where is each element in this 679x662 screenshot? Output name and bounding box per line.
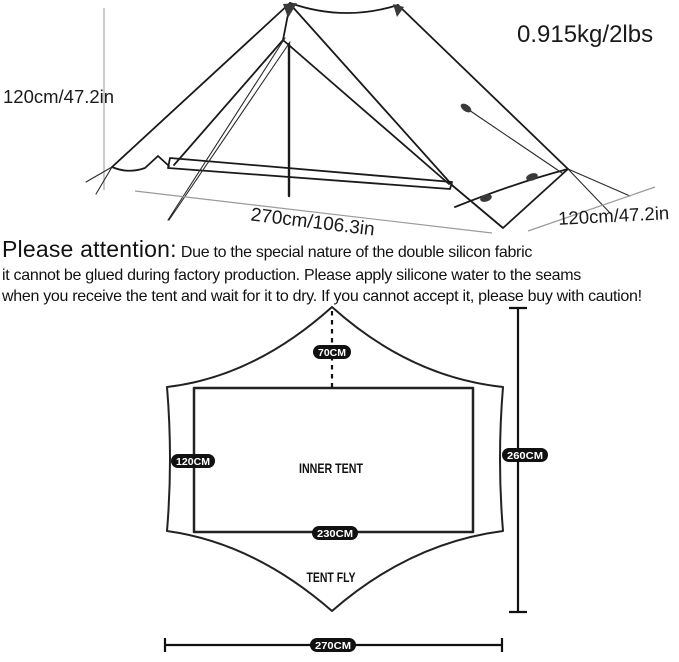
tent-height-label: 120cm/47.2in (3, 86, 114, 107)
front-hem (453, 169, 568, 228)
bathtub-floor-edges (168, 158, 452, 189)
tent-floor-plan: 70CM 120CM 230CM 260CM 270CM INNER TENT … (0, 305, 679, 662)
front-guy-line (168, 38, 290, 220)
pill-270cm-text: 270CM (315, 640, 351, 652)
pill-70cm-text: 70CM (318, 347, 346, 359)
weight-label: 0.915kg/2lbs (517, 21, 653, 48)
dimension-pill-70cm: 70CM (313, 345, 351, 359)
guyout-toggle-dot (459, 102, 473, 114)
inner-right-edge (283, 40, 449, 184)
right-peak-cap (393, 4, 404, 17)
left-edge (112, 3, 290, 167)
pill-120cm-text: 120CM (176, 456, 210, 468)
pill-230cm-text: 230CM (317, 528, 353, 540)
ridge-line (290, 3, 398, 13)
tent-dimensions-drawing: 0.915kg/2lbs 120cm/47.2in 270cm/106.3in … (0, 0, 679, 240)
tent-width-label: 120cm/47.2in (558, 202, 670, 229)
right-hem (455, 169, 568, 207)
front-door-edge (290, 4, 453, 186)
attention-line-2: it cannot be glued during factory produc… (2, 265, 678, 286)
dimension-pill-260cm: 260CM (502, 448, 548, 462)
dimension-pill-120cm: 120CM (171, 454, 215, 468)
attention-line-3: when you receive the tent and wait for i… (2, 286, 678, 307)
inner-tent-label: INNER TENT (299, 460, 363, 476)
attention-note: Please attention: Due to the special nat… (2, 237, 678, 307)
pill-260cm-text: 260CM (507, 450, 543, 462)
left-guy-lines (86, 167, 112, 194)
attention-line-1-text: Due to the special nature of the double … (181, 244, 532, 261)
guy-lines (86, 38, 630, 220)
tent-product-infographic: 0.915kg/2lbs 120cm/47.2in 270cm/106.3in … (0, 0, 679, 662)
dimension-pill-270cm: 270CM (310, 638, 356, 652)
tent-length-label: 270cm/106.3in (250, 205, 376, 240)
tent-fly-outline (112, 3, 568, 228)
tent-fly-label: TENT FLY (307, 569, 356, 585)
dimension-pill-230cm: 230CM (312, 526, 358, 540)
attention-line-1: Please attention: Due to the special nat… (2, 237, 678, 265)
attention-heading: Please attention: (2, 236, 177, 262)
inner-tent-sketch (168, 4, 452, 196)
